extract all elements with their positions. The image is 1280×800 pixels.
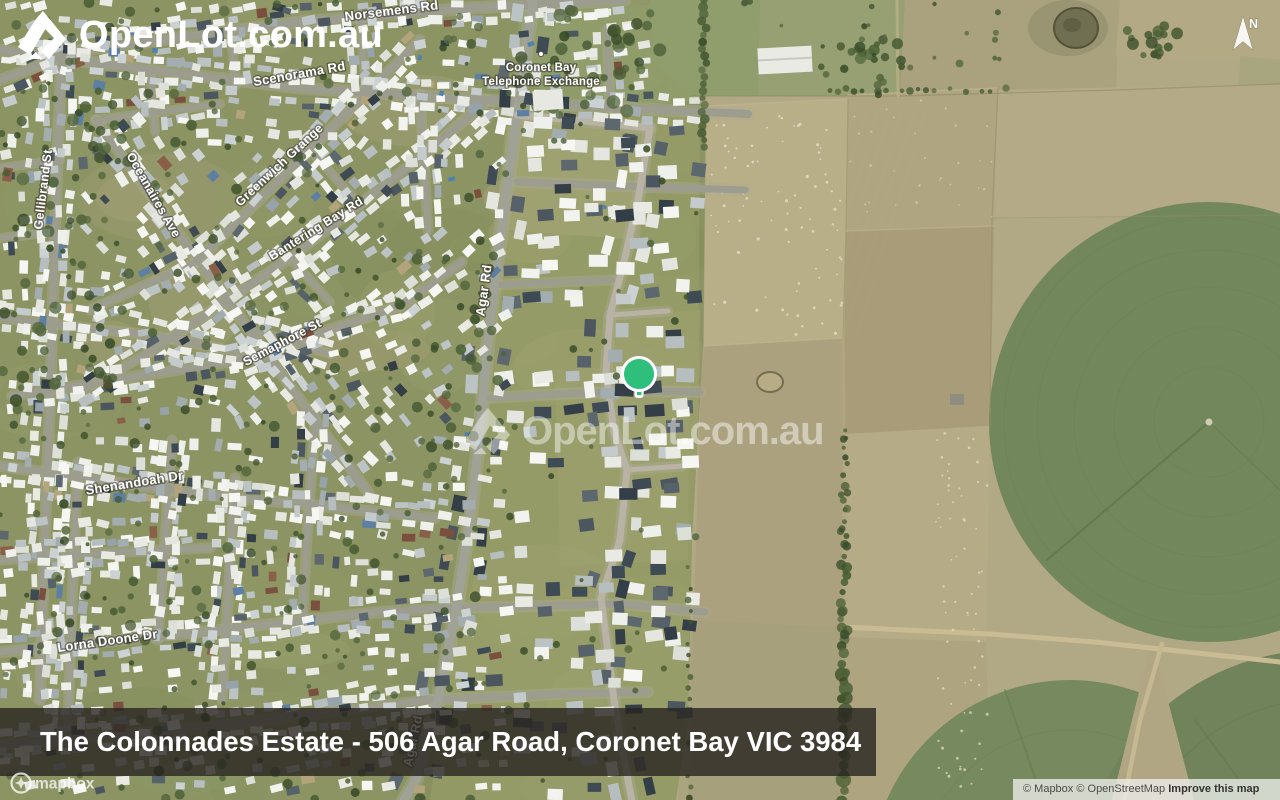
svg-text:mapbox: mapbox <box>35 776 95 793</box>
svg-text:Coronet Bay: Coronet Bay <box>506 62 577 74</box>
svg-text:N: N <box>1249 17 1258 31</box>
svg-text:Telephone Exchange: Telephone Exchange <box>482 76 600 88</box>
